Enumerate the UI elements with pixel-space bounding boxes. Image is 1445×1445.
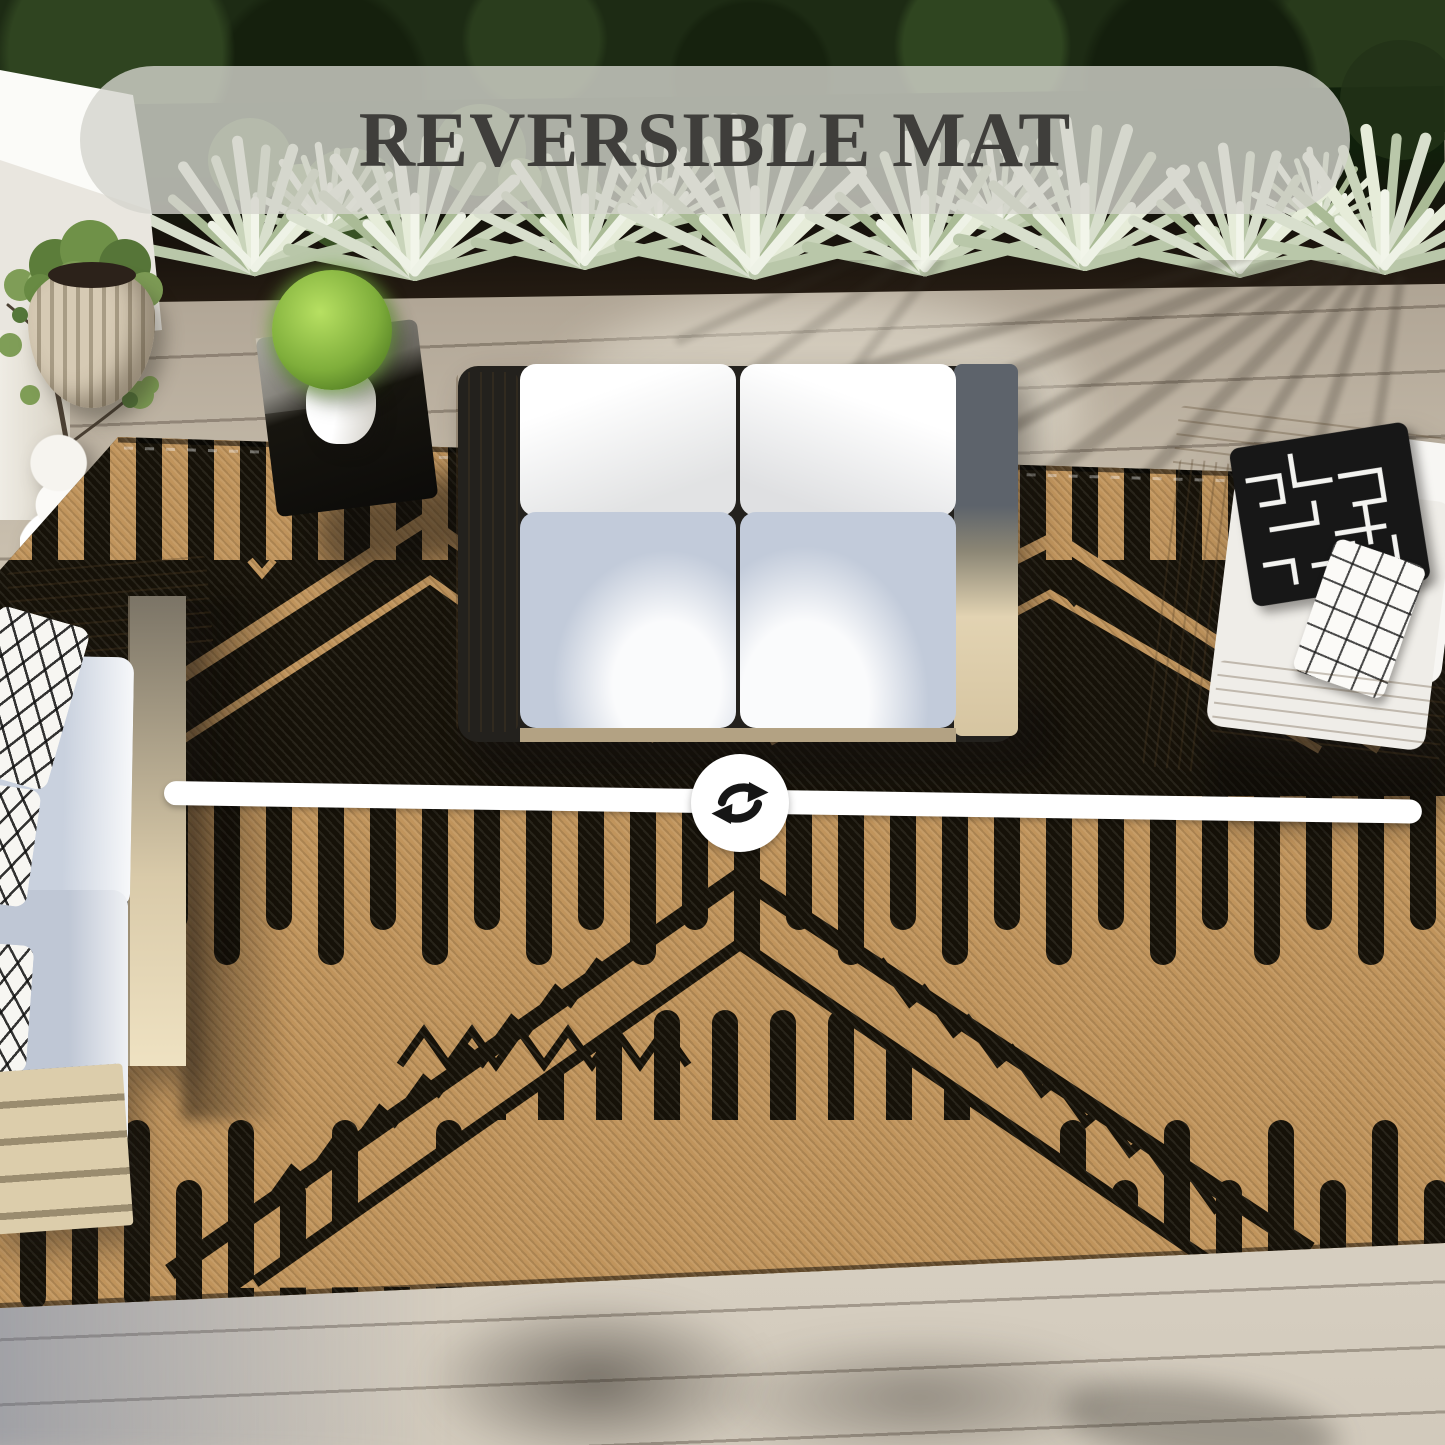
loveseat-back-cushion-left — [520, 364, 736, 516]
product-photo-patio-scene: REVERSIBLE MAT — [0, 0, 1445, 1445]
sofa-armrest-plank — [128, 596, 186, 1066]
banner-title: REVERSIBLE MAT — [359, 95, 1072, 185]
ball-topiary — [272, 270, 392, 390]
center-loveseat — [456, 364, 1018, 744]
left-sofa — [0, 548, 282, 1238]
planter-soil — [48, 262, 136, 288]
loveseat-right-armrest — [954, 364, 1018, 736]
loveseat-seat-cushion-right — [740, 512, 956, 728]
loveseat-back-cushion-right — [740, 364, 956, 516]
loveseat-seat-cushion-left — [520, 512, 736, 728]
swap-arrows-icon — [691, 754, 789, 852]
swap-arrows-glyph — [704, 767, 776, 839]
loveseat-left-armrest — [456, 372, 518, 732]
sofa-base-slats — [0, 1063, 133, 1234]
banner: REVERSIBLE MAT — [80, 66, 1350, 214]
loveseat-front-rail — [520, 728, 956, 742]
right-armchair — [1142, 406, 1445, 797]
plant-shadow — [700, 1330, 1140, 1445]
